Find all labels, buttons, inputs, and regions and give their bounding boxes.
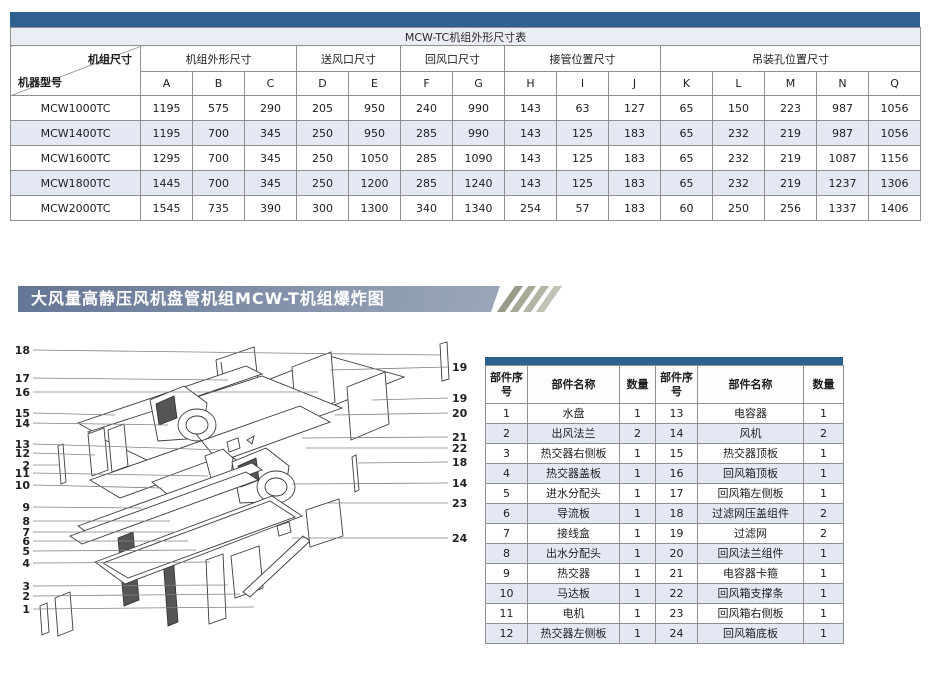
dimension-value-cell: 300: [297, 196, 349, 221]
parts-cell: 6: [486, 504, 528, 524]
parts-header-cell: 部件名称: [698, 366, 804, 404]
dimension-table-row: MCW1400TC1195700345250950285990143125183…: [11, 121, 921, 146]
parts-cell: 进水分配头: [528, 484, 620, 504]
dimension-value-cell: 232: [713, 146, 765, 171]
dimension-value-cell: 290: [245, 96, 297, 121]
leader-line: [33, 413, 115, 415]
parts-table-row: 10马达板122回风箱支撑条1: [486, 584, 844, 604]
section-banner: 大风量高静压风机盘管机组MCW-T机组爆炸图: [18, 286, 500, 312]
dimension-value-cell: 1340: [453, 196, 505, 221]
parts-header-cell: 数量: [620, 366, 656, 404]
dimension-value-cell: 1306: [869, 171, 921, 196]
parts-table-row: 3热交器右侧板115热交器顶板1: [486, 444, 844, 464]
parts-cell: 1: [804, 404, 844, 424]
parts-table-header-row: 部件序号部件名称数量部件序号部件名称数量: [486, 366, 844, 404]
dimension-table-top-bar: [10, 12, 920, 27]
parts-cell: 1: [804, 604, 844, 624]
dimension-value-cell: 1195: [141, 96, 193, 121]
dimension-value-cell: 240: [401, 96, 453, 121]
dimension-table-row: MCW1600TC1295700345250105028510901431251…: [11, 146, 921, 171]
dimension-value-cell: 143: [505, 121, 557, 146]
parts-cell: 出水分配头: [528, 544, 620, 564]
parts-cell: 2: [486, 424, 528, 444]
parts-header-cell: 部件名称: [528, 366, 620, 404]
part-number-label: 14: [452, 477, 468, 490]
parts-table-row: 8出水分配头120回风法兰组件1: [486, 544, 844, 564]
part-number-label: 22: [452, 442, 467, 455]
parts-table-section: 部件序号部件名称数量部件序号部件名称数量 1水盘113电容器12出风法兰214风…: [485, 357, 843, 644]
dimension-value-cell: 285: [401, 121, 453, 146]
dimension-value-cell: 143: [505, 146, 557, 171]
parts-cell: 电机: [528, 604, 620, 624]
dimension-value-cell: 183: [609, 196, 661, 221]
dimension-letter-header: K: [661, 72, 713, 96]
dimension-value-cell: 63: [557, 96, 609, 121]
dimension-value-cell: 250: [297, 121, 349, 146]
parts-cell: 回风法兰组件: [698, 544, 804, 564]
parts-cell: 1: [804, 484, 844, 504]
parts-cell: 1: [620, 484, 656, 504]
parts-table-row: 4热交器盖板116回风箱顶板1: [486, 464, 844, 484]
parts-cell: 16: [656, 464, 698, 484]
dimension-value-cell: 65: [661, 121, 713, 146]
dimension-table-row: MCW1000TC1195575290205950240990143631276…: [11, 96, 921, 121]
corner-header-cell: 机组尺寸 机器型号: [11, 46, 141, 96]
part-number-label: 20: [452, 407, 468, 420]
dimension-value-cell: 990: [453, 121, 505, 146]
parts-cell: 11: [486, 604, 528, 624]
dimension-table-section: MCW-TC机组外形尺寸表 机组尺寸 机器型号机组外形尺寸送风口尺寸回风口尺寸接…: [10, 12, 920, 221]
part-number-label: 19: [452, 392, 467, 405]
parts-header-cell: 数量: [804, 366, 844, 404]
part-number-label: 23: [452, 497, 467, 510]
part-number-label: 17: [15, 372, 30, 385]
dimension-value-cell: 1056: [869, 96, 921, 121]
dimension-value-cell: 987: [817, 121, 869, 146]
model-name-cell: MCW1400TC: [11, 121, 141, 146]
exploded-diagram: 1817161514131221110987654321191920212218…: [0, 330, 480, 665]
parts-cell: 1: [804, 584, 844, 604]
dimension-value-cell: 232: [713, 171, 765, 196]
parts-table-body: 1水盘113电容器12出风法兰214风机23热交器右侧板115热交器顶板14热交…: [486, 404, 844, 644]
parts-table-row: 5进水分配头117回风箱左侧板1: [486, 484, 844, 504]
dimension-value-cell: 345: [245, 146, 297, 171]
dimension-letter-header: J: [609, 72, 661, 96]
part-number-label: 4: [22, 557, 30, 570]
parts-cell: 回风箱顶板: [698, 464, 804, 484]
corner-label-model: 机器型号: [18, 74, 62, 90]
dimension-value-cell: 1445: [141, 171, 193, 196]
parts-cell: 13: [656, 404, 698, 424]
dimension-value-cell: 345: [245, 121, 297, 146]
dimension-value-cell: 125: [557, 121, 609, 146]
leader-line: [302, 437, 448, 438]
banner-stripes-decoration: [506, 286, 566, 312]
dimension-letter-header: B: [193, 72, 245, 96]
part-number-label: 1: [22, 603, 30, 616]
dimension-value-cell: 1050: [349, 146, 401, 171]
parts-cell: 10: [486, 584, 528, 604]
parts-cell: 1: [620, 524, 656, 544]
dimension-value-cell: 183: [609, 121, 661, 146]
part-number-label: 14: [15, 417, 31, 430]
leader-line: [33, 562, 210, 563]
parts-cell: 21: [656, 564, 698, 584]
dimension-value-cell: 183: [609, 171, 661, 196]
parts-cell: 2: [804, 524, 844, 544]
part-number-label: 2: [22, 590, 30, 603]
parts-cell: 2: [804, 504, 844, 524]
dimension-value-cell: 219: [765, 146, 817, 171]
parts-table-row: 12热交器左侧板124回风箱底板1: [486, 624, 844, 644]
parts-cell: 15: [656, 444, 698, 464]
column-group-header: 回风口尺寸: [401, 46, 505, 72]
parts-cell: 1: [804, 464, 844, 484]
parts-cell: 1: [620, 544, 656, 564]
dimension-value-cell: 345: [245, 171, 297, 196]
model-name-cell: MCW1000TC: [11, 96, 141, 121]
parts-cell: 1: [620, 504, 656, 524]
parts-cell: 2: [620, 424, 656, 444]
dimension-table-body: MCW-TC机组外形尺寸表 机组尺寸 机器型号机组外形尺寸送风口尺寸回风口尺寸接…: [11, 28, 921, 221]
parts-table-row: 6导流板118过滤网压盖组件2: [486, 504, 844, 524]
parts-cell: 1: [804, 564, 844, 584]
parts-cell: 1: [804, 544, 844, 564]
parts-cell: 3: [486, 444, 528, 464]
parts-table-row: 2出风法兰214风机2: [486, 424, 844, 444]
dimension-value-cell: 219: [765, 171, 817, 196]
dimension-value-cell: 1240: [453, 171, 505, 196]
dimension-value-cell: 390: [245, 196, 297, 221]
dimension-table-row: MCW2000TC1545735390300130034013402545718…: [11, 196, 921, 221]
dimension-letter-header: L: [713, 72, 765, 96]
dimension-value-cell: 285: [401, 146, 453, 171]
dimension-value-cell: 1295: [141, 146, 193, 171]
parts-table-row: 7接线盒119过滤网2: [486, 524, 844, 544]
part-number-label: 24: [452, 532, 468, 545]
parts-cell: 热交器盖板: [528, 464, 620, 484]
dimension-letter-header: G: [453, 72, 505, 96]
dimension-value-cell: 183: [609, 146, 661, 171]
parts-cell: 18: [656, 504, 698, 524]
dimension-letter-header: D: [297, 72, 349, 96]
dimension-value-cell: 1237: [817, 171, 869, 196]
dimension-value-cell: 65: [661, 146, 713, 171]
dimension-value-cell: 285: [401, 171, 453, 196]
dimension-value-cell: 1090: [453, 146, 505, 171]
part-number-label: 9: [22, 501, 30, 514]
part-number-label: 19: [452, 361, 467, 374]
parts-cell: 9: [486, 564, 528, 584]
parts-cell: 回风箱右侧板: [698, 604, 804, 624]
part-number-label: 16: [15, 386, 31, 399]
dimension-letter-header: I: [557, 72, 609, 96]
dimension-value-cell: 1545: [141, 196, 193, 221]
dimension-table: MCW-TC机组外形尺寸表 机组尺寸 机器型号机组外形尺寸送风口尺寸回风口尺寸接…: [10, 27, 921, 221]
dimension-value-cell: 250: [297, 171, 349, 196]
dimension-value-cell: 1156: [869, 146, 921, 171]
part-number-label: 18: [452, 456, 467, 469]
parts-cell: 22: [656, 584, 698, 604]
dimension-value-cell: 1200: [349, 171, 401, 196]
dimension-letter-header: E: [349, 72, 401, 96]
parts-cell: 8: [486, 544, 528, 564]
corner-label-unit-size: 机组尺寸: [88, 51, 132, 67]
dimension-value-cell: 1300: [349, 196, 401, 221]
dimension-value-cell: 143: [505, 171, 557, 196]
parts-cell: 导流板: [528, 504, 620, 524]
parts-cell: 水盘: [528, 404, 620, 424]
parts-cell: 马达板: [528, 584, 620, 604]
parts-cell: 1: [804, 444, 844, 464]
exploded-parts-shapes: [40, 342, 449, 636]
dimension-value-cell: 143: [505, 96, 557, 121]
parts-cell: 1: [620, 584, 656, 604]
parts-table-row: 11电机123回风箱右侧板1: [486, 604, 844, 624]
parts-cell: 1: [620, 624, 656, 644]
dimension-value-cell: 250: [297, 146, 349, 171]
model-name-cell: MCW2000TC: [11, 196, 141, 221]
dimension-value-cell: 1195: [141, 121, 193, 146]
part-number-label: 10: [15, 479, 31, 492]
dimension-value-cell: 950: [349, 96, 401, 121]
leader-line: [33, 378, 228, 380]
parts-cell: 1: [620, 604, 656, 624]
leader-line: [292, 483, 448, 484]
dimension-value-cell: 60: [661, 196, 713, 221]
dimension-letter-header: Q: [869, 72, 921, 96]
parts-cell: 4: [486, 464, 528, 484]
dimension-value-cell: 1056: [869, 121, 921, 146]
leader-line: [33, 507, 142, 508]
dimension-value-cell: 735: [193, 196, 245, 221]
parts-header-cell: 部件序号: [486, 366, 528, 404]
model-name-cell: MCW1800TC: [11, 171, 141, 196]
dimension-value-cell: 65: [661, 171, 713, 196]
parts-cell: 热交器左侧板: [528, 624, 620, 644]
parts-cell: 5: [486, 484, 528, 504]
dimension-value-cell: 700: [193, 121, 245, 146]
parts-table-row: 1水盘113电容器1: [486, 404, 844, 424]
parts-cell: 接线盒: [528, 524, 620, 544]
parts-cell: 回风箱支撑条: [698, 584, 804, 604]
section-banner-title: 大风量高静压风机盘管机组MCW-T机组爆炸图: [31, 289, 385, 308]
dimension-value-cell: 125: [557, 171, 609, 196]
dimension-table-title: MCW-TC机组外形尺寸表: [11, 28, 921, 46]
dimension-value-cell: 125: [557, 146, 609, 171]
dimension-value-cell: 700: [193, 146, 245, 171]
dimension-value-cell: 127: [609, 96, 661, 121]
parts-cell: 7: [486, 524, 528, 544]
parts-cell: 1: [620, 444, 656, 464]
dimension-value-cell: 150: [713, 96, 765, 121]
column-group-header: 送风口尺寸: [297, 46, 401, 72]
parts-cell: 过滤网压盖组件: [698, 504, 804, 524]
parts-cell: 1: [620, 564, 656, 584]
dimension-value-cell: 205: [297, 96, 349, 121]
dimension-value-cell: 950: [349, 121, 401, 146]
parts-cell: 1: [486, 404, 528, 424]
parts-table-row: 9热交器121电容器卡箍1: [486, 564, 844, 584]
dimension-value-cell: 223: [765, 96, 817, 121]
parts-table-top-bar: [485, 357, 843, 365]
dimension-table-row: MCW1800TC1445700345250120028512401431251…: [11, 171, 921, 196]
parts-cell: 20: [656, 544, 698, 564]
exploded-view-drawing: 1817161514131221110987654321191920212218…: [0, 330, 480, 665]
parts-cell: 14: [656, 424, 698, 444]
parts-cell: 19: [656, 524, 698, 544]
dimension-letter-header: F: [401, 72, 453, 96]
parts-cell: 2: [804, 424, 844, 444]
parts-cell: 电容器: [698, 404, 804, 424]
dimension-value-cell: 57: [557, 196, 609, 221]
dimension-value-cell: 256: [765, 196, 817, 221]
dimension-value-cell: 1087: [817, 146, 869, 171]
parts-cell: 17: [656, 484, 698, 504]
column-group-header: 吊装孔位置尺寸: [661, 46, 921, 72]
parts-cell: 23: [656, 604, 698, 624]
parts-cell: 1: [620, 404, 656, 424]
parts-cell: 12: [486, 624, 528, 644]
parts-header-cell: 部件序号: [656, 366, 698, 404]
dimension-letter-header: N: [817, 72, 869, 96]
dimension-letter-header: H: [505, 72, 557, 96]
parts-cell: 回风箱左侧板: [698, 484, 804, 504]
dimension-value-cell: 1337: [817, 196, 869, 221]
dimension-value-cell: 219: [765, 121, 817, 146]
leader-line: [33, 585, 228, 586]
dimension-value-cell: 700: [193, 171, 245, 196]
column-group-header: 接管位置尺寸: [505, 46, 661, 72]
dimension-value-cell: 340: [401, 196, 453, 221]
dimension-letter-header: A: [141, 72, 193, 96]
parts-cell: 回风箱底板: [698, 624, 804, 644]
dimension-letter-header: M: [765, 72, 817, 96]
parts-cell: 过滤网: [698, 524, 804, 544]
dimension-value-cell: 250: [713, 196, 765, 221]
parts-cell: 热交器: [528, 564, 620, 584]
column-group-header: 机组外形尺寸: [141, 46, 297, 72]
dimension-value-cell: 254: [505, 196, 557, 221]
dimension-value-cell: 575: [193, 96, 245, 121]
parts-cell: 热交器顶板: [698, 444, 804, 464]
dimension-value-cell: 990: [453, 96, 505, 121]
leader-line: [358, 462, 448, 463]
parts-cell: 1: [804, 624, 844, 644]
dimension-value-cell: 232: [713, 121, 765, 146]
model-name-cell: MCW1600TC: [11, 146, 141, 171]
parts-cell: 热交器右侧板: [528, 444, 620, 464]
dimension-value-cell: 1406: [869, 196, 921, 221]
part-number-label: 18: [15, 344, 30, 357]
parts-cell: 出风法兰: [528, 424, 620, 444]
parts-cell: 24: [656, 624, 698, 644]
parts-cell: 1: [620, 464, 656, 484]
dimension-letter-header: C: [245, 72, 297, 96]
parts-cell: 电容器卡箍: [698, 564, 804, 584]
dimension-value-cell: 987: [817, 96, 869, 121]
parts-table: 部件序号部件名称数量部件序号部件名称数量 1水盘113电容器12出风法兰214风…: [485, 365, 844, 644]
dimension-value-cell: 65: [661, 96, 713, 121]
parts-cell: 风机: [698, 424, 804, 444]
